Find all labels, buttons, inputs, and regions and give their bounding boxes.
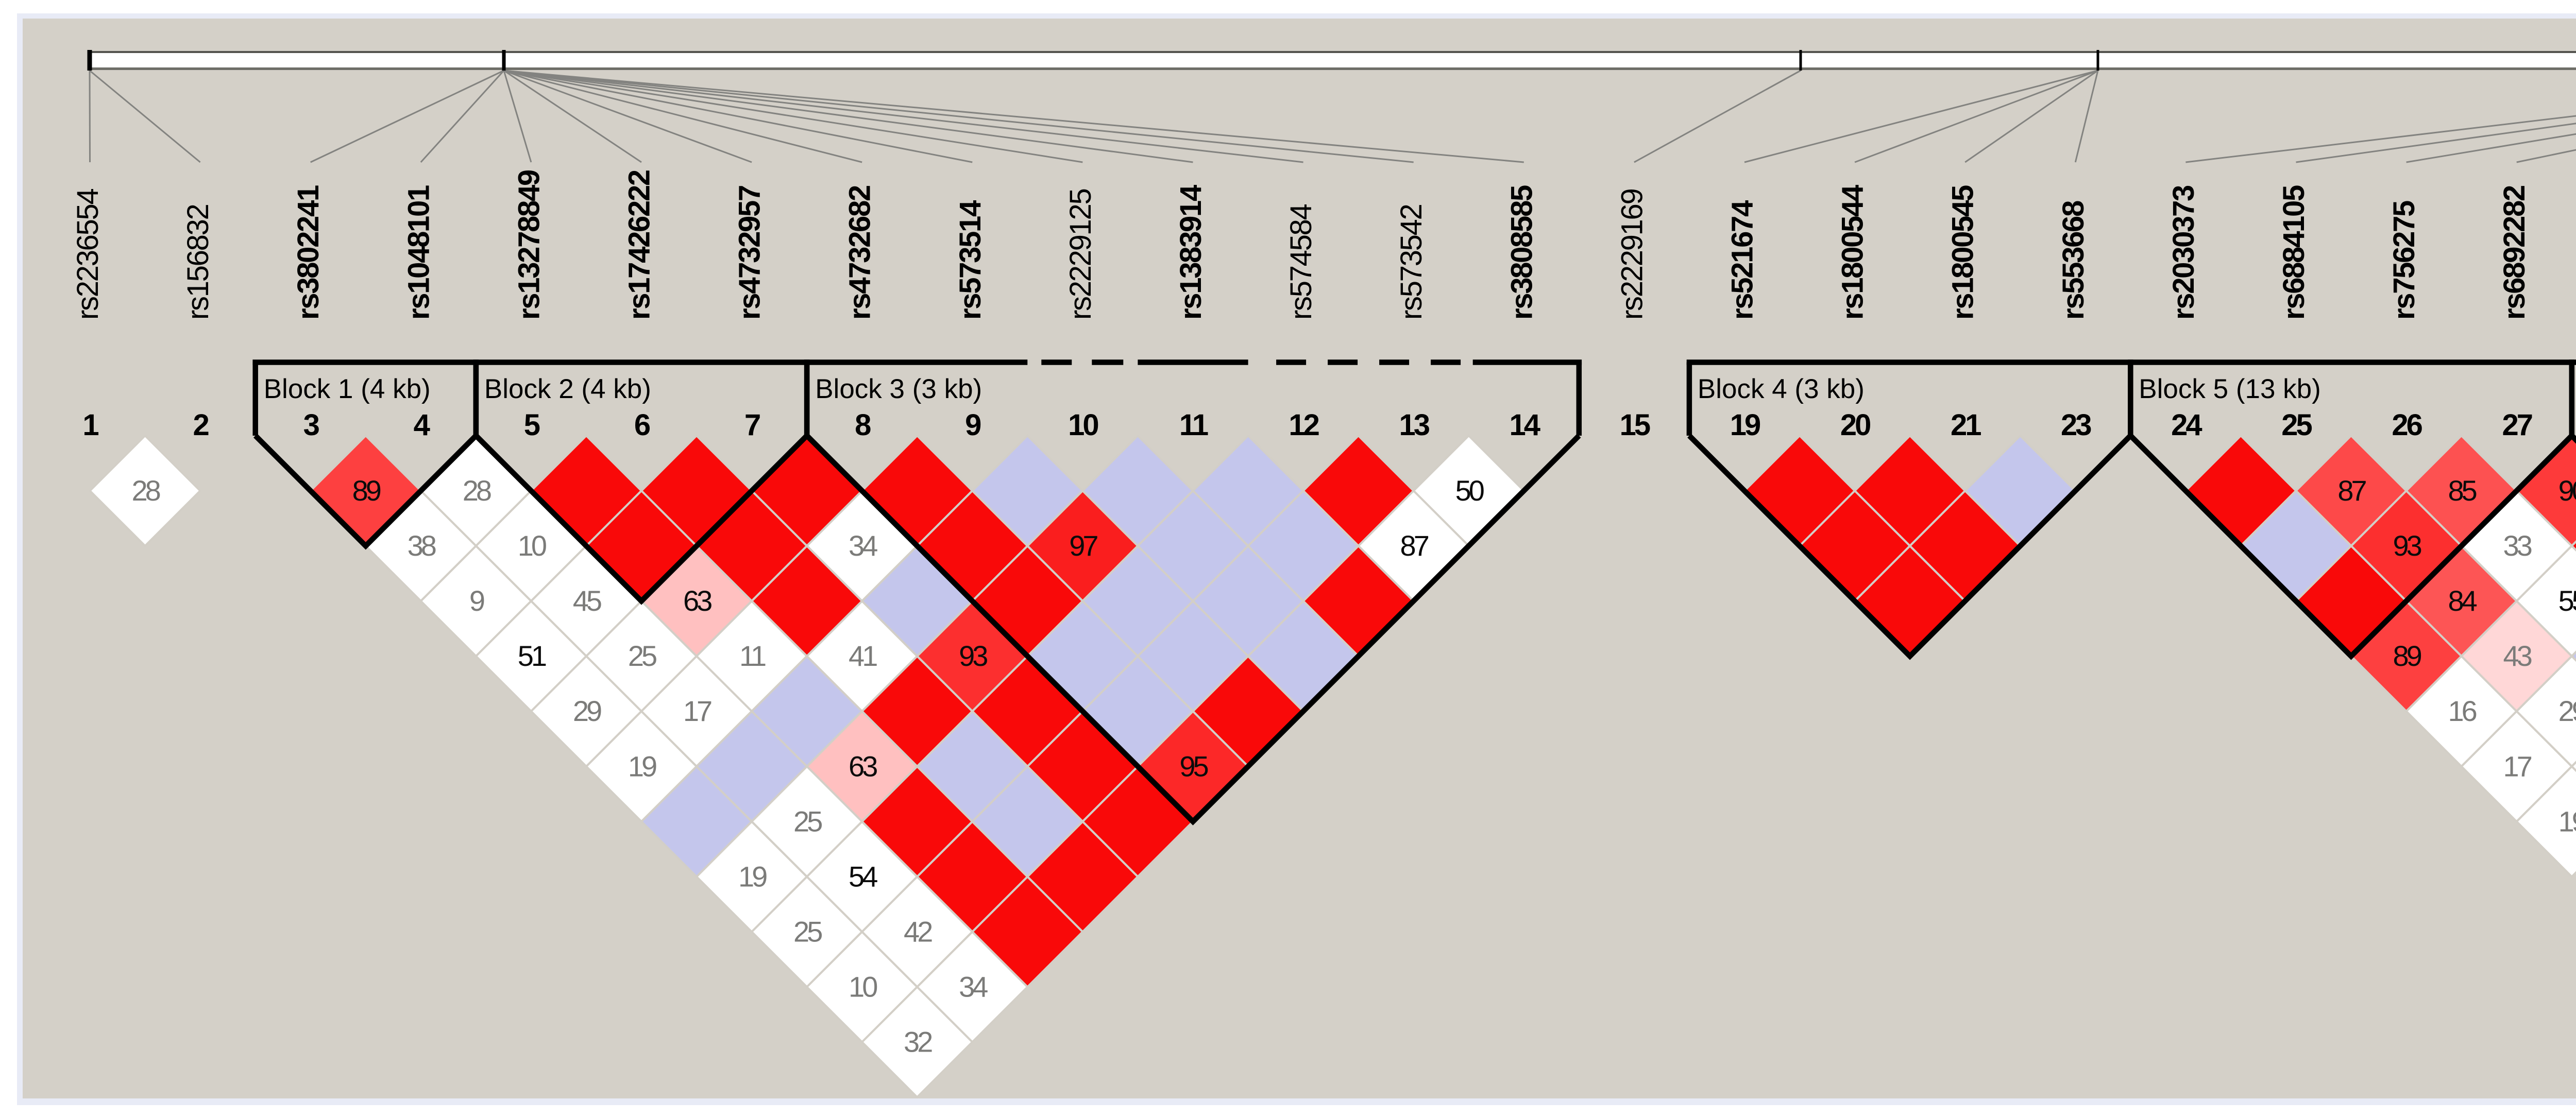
svg-text:32: 32 [904, 1026, 932, 1058]
svg-text:42: 42 [904, 915, 932, 948]
svg-text:rs2030373: rs2030373 [2167, 185, 2200, 320]
svg-text:24: 24 [2171, 408, 2202, 442]
svg-text:34: 34 [959, 971, 988, 1003]
svg-text:rs4732957: rs4732957 [733, 186, 767, 320]
svg-text:13: 13 [1399, 408, 1429, 442]
svg-text:54: 54 [849, 860, 877, 892]
svg-text:26: 26 [2392, 408, 2422, 442]
svg-text:25: 25 [2281, 408, 2312, 442]
svg-text:20: 20 [1840, 408, 1870, 442]
svg-text:85: 85 [2448, 474, 2476, 507]
svg-text:rs3802241: rs3802241 [292, 185, 325, 320]
svg-text:rs4732682: rs4732682 [843, 186, 877, 320]
svg-text:14: 14 [1510, 408, 1540, 442]
svg-text:8: 8 [855, 408, 871, 442]
svg-text:rs2229125: rs2229125 [1064, 190, 1097, 320]
svg-text:63: 63 [683, 584, 711, 617]
svg-text:15: 15 [1620, 408, 1650, 442]
svg-text:23: 23 [2061, 408, 2091, 442]
svg-text:17: 17 [683, 695, 711, 727]
svg-text:25: 25 [793, 805, 822, 837]
svg-text:Block 1 (4 kb): Block 1 (4 kb) [264, 374, 431, 404]
svg-text:1: 1 [82, 408, 98, 442]
svg-text:27: 27 [2502, 408, 2532, 442]
svg-text:51: 51 [518, 640, 546, 672]
svg-text:25: 25 [793, 915, 822, 948]
svg-text:89: 89 [352, 474, 381, 507]
svg-text:87: 87 [2337, 474, 2366, 507]
svg-text:93: 93 [959, 640, 987, 672]
svg-text:rs156832: rs156832 [181, 205, 215, 320]
svg-text:9: 9 [469, 584, 484, 617]
svg-text:rs553668: rs553668 [2057, 201, 2090, 320]
svg-text:Block 4 (3 kb): Block 4 (3 kb) [1698, 374, 1865, 404]
svg-text:Block 3 (3 kb): Block 3 (3 kb) [815, 374, 982, 404]
svg-text:17: 17 [2503, 750, 2532, 782]
svg-text:10: 10 [518, 529, 546, 562]
svg-text:63: 63 [849, 750, 877, 782]
svg-text:84: 84 [2448, 584, 2477, 617]
svg-text:rs2236554: rs2236554 [71, 189, 105, 320]
svg-text:rs1048101: rs1048101 [402, 185, 435, 320]
svg-text:rs573514: rs573514 [954, 200, 987, 320]
svg-text:5: 5 [524, 408, 540, 442]
svg-text:87: 87 [1400, 529, 1429, 562]
svg-text:rs3808585: rs3808585 [1505, 185, 1538, 320]
svg-text:45: 45 [573, 584, 601, 617]
svg-text:rs1800544: rs1800544 [1836, 185, 1870, 320]
svg-text:55: 55 [2558, 584, 2576, 617]
svg-text:93: 93 [2393, 529, 2421, 562]
svg-text:Block 5 (13 kb): Block 5 (13 kb) [2139, 374, 2320, 404]
svg-text:3: 3 [303, 408, 319, 442]
svg-text:29: 29 [2558, 695, 2576, 727]
svg-text:33: 33 [2503, 529, 2532, 562]
svg-text:rs1383914: rs1383914 [1174, 185, 1208, 320]
svg-text:10: 10 [849, 971, 877, 1003]
svg-text:95: 95 [1179, 750, 1208, 782]
svg-text:rs2229169: rs2229169 [1615, 190, 1649, 320]
svg-text:rs573542: rs573542 [1395, 205, 1428, 320]
svg-text:28: 28 [131, 474, 160, 507]
svg-text:89: 89 [2393, 640, 2421, 672]
svg-text:9: 9 [965, 408, 981, 442]
svg-text:rs13278849: rs13278849 [512, 170, 546, 320]
svg-text:19: 19 [2558, 805, 2576, 837]
svg-text:38: 38 [408, 529, 436, 562]
svg-text:41: 41 [849, 640, 877, 672]
svg-text:19: 19 [1730, 408, 1760, 442]
svg-text:rs521674: rs521674 [1726, 200, 1759, 320]
svg-text:43: 43 [2503, 640, 2532, 672]
svg-text:90: 90 [2558, 474, 2576, 507]
svg-text:16: 16 [2448, 695, 2476, 727]
svg-text:29: 29 [573, 695, 601, 727]
svg-text:19: 19 [738, 860, 767, 892]
svg-text:2: 2 [193, 408, 208, 442]
svg-text:28: 28 [463, 474, 491, 507]
svg-text:rs17426222: rs17426222 [623, 170, 656, 320]
svg-text:rs6892282: rs6892282 [2498, 186, 2531, 320]
svg-text:rs6884105: rs6884105 [2277, 185, 2311, 320]
svg-text:7: 7 [744, 408, 760, 442]
svg-text:25: 25 [628, 640, 656, 672]
svg-text:50: 50 [1455, 474, 1484, 507]
svg-text:34: 34 [849, 529, 877, 562]
svg-text:4: 4 [414, 408, 430, 442]
svg-text:12: 12 [1289, 408, 1318, 442]
svg-text:6: 6 [634, 408, 650, 442]
svg-text:19: 19 [628, 750, 656, 782]
svg-text:rs574584: rs574584 [1284, 204, 1318, 320]
svg-text:Block 2 (4 kb): Block 2 (4 kb) [484, 374, 651, 404]
svg-text:11: 11 [739, 640, 766, 672]
svg-text:10: 10 [1068, 408, 1098, 442]
svg-text:11: 11 [1179, 408, 1208, 442]
svg-text:rs756275: rs756275 [2387, 201, 2421, 320]
svg-text:97: 97 [1069, 529, 1097, 562]
svg-text:21: 21 [1951, 408, 1981, 442]
svg-text:rs1800545: rs1800545 [1946, 185, 1980, 320]
